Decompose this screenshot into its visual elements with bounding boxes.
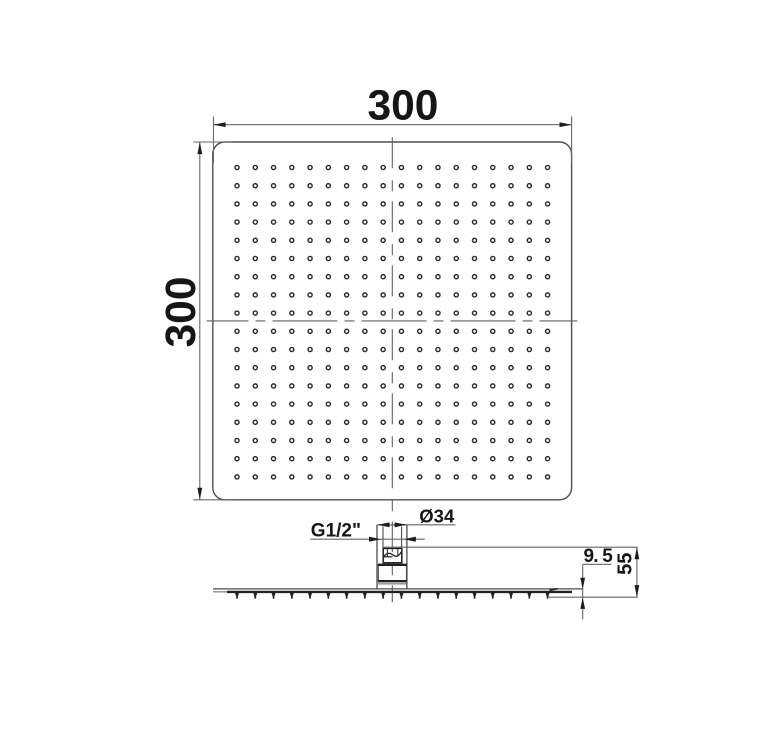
svg-text:300: 300: [158, 277, 205, 348]
svg-text:Ø34: Ø34: [419, 505, 455, 526]
svg-text:300: 300: [368, 83, 439, 130]
svg-text:G1/2": G1/2": [311, 520, 361, 541]
svg-text:9. 5: 9. 5: [584, 546, 614, 567]
svg-text:55: 55: [614, 553, 636, 575]
